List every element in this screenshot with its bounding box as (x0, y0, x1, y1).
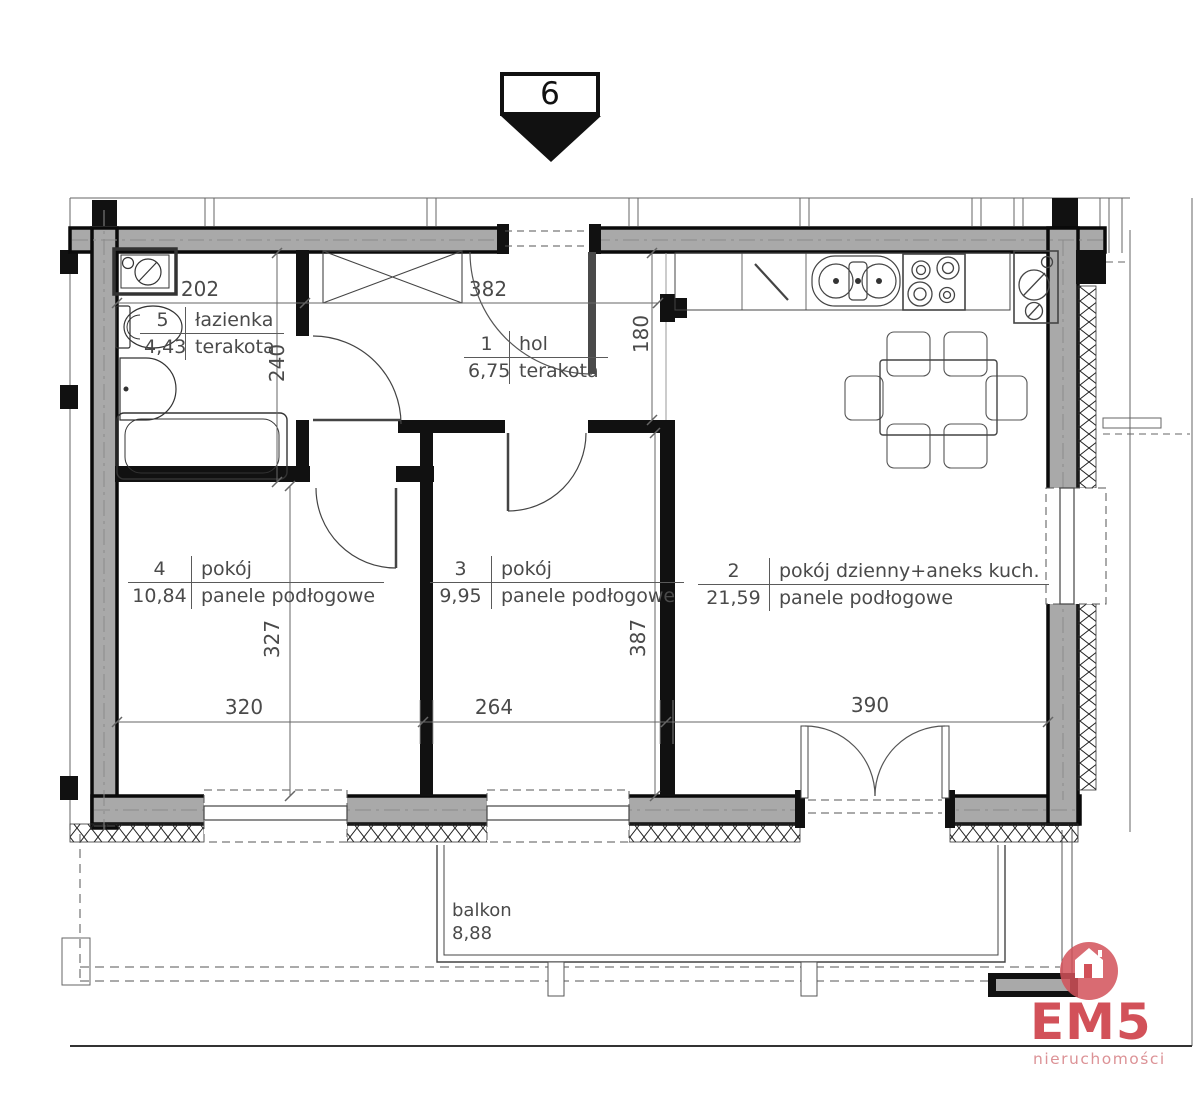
room3-door (508, 433, 586, 511)
room-number: 1 (464, 331, 510, 358)
knife-icon (755, 264, 788, 300)
room-floor: panele podłogowe (770, 585, 1049, 611)
room-name: pokój dzienny+aneks kuch. (770, 558, 1049, 585)
balcony-post (548, 962, 564, 996)
room-name: łazienka (186, 307, 284, 334)
dim-hall-depth: 180 (629, 304, 653, 364)
window-room4 (204, 790, 347, 842)
dim-living-width: 390 (840, 693, 900, 717)
dim-room3-height: 387 (626, 608, 650, 668)
balcony-label: balkon 8,88 (452, 899, 512, 945)
room-name: pokój (192, 556, 384, 583)
room-floor: panele podłogowe (492, 583, 684, 609)
room-label-hol: 1 hol 6,75 terakota (464, 331, 608, 384)
balcony-french-door (795, 726, 955, 828)
washer-shaft (114, 249, 176, 294)
room-area: 4,43 (140, 334, 186, 360)
dim-room4-height: 327 (260, 609, 284, 669)
unit-number: 6 (540, 76, 560, 112)
room-label-bathroom: 5 łazienka 4,43 terakota (140, 307, 284, 360)
room-label-room3: 3 pokój 9,95 panele podłogowe (430, 556, 684, 609)
unit-number-marker: 6 (500, 72, 600, 116)
room-number: 2 (698, 558, 770, 585)
room-floor: terakota (510, 358, 608, 384)
dining-set (845, 332, 1027, 468)
room-name: hol (510, 331, 608, 358)
room-name: pokój (492, 556, 684, 583)
wardrobe (323, 251, 462, 303)
floor-plan-page: 6 5 łazienka 4,43 terakota 1 hol 6,75 te… (0, 0, 1200, 1120)
logo-tagline: nieruchomości (1033, 1050, 1166, 1068)
balcony-post (801, 962, 817, 996)
balcony-area: 8,88 (452, 922, 512, 945)
room-area: 6,75 (464, 358, 510, 384)
window-room3 (487, 790, 629, 842)
room-area: 21,59 (698, 585, 770, 611)
kitchen-counter (675, 253, 1010, 310)
room-floor: panele podłogowe (192, 583, 384, 609)
logo-title: EM5 (1030, 996, 1152, 1048)
balcony-name: balkon (452, 899, 512, 922)
kitchen (675, 251, 1058, 323)
dim-bathroom-width: 202 (170, 277, 230, 301)
room-number: 3 (430, 556, 492, 583)
logo-mark (1060, 942, 1118, 1000)
sink (120, 358, 176, 420)
room-area: 9,95 (430, 583, 492, 609)
dim-bathroom-depth: 240 (265, 333, 289, 393)
room-area: 10,84 (128, 583, 192, 609)
dim-room3-width: 264 (464, 695, 524, 719)
kitchen-sink (812, 256, 900, 306)
right-wall-stub (1076, 250, 1106, 284)
room-number: 4 (128, 556, 192, 583)
stove (903, 254, 965, 310)
bathroom-door (313, 336, 401, 424)
dim-hall-width: 382 (458, 277, 518, 301)
room-number: 5 (140, 307, 186, 334)
room-label-living: 2 pokój dzienny+aneks kuch. 21,59 panele… (698, 558, 1049, 611)
balcony (80, 830, 1078, 997)
window-living-right (1046, 488, 1106, 604)
room-label-room4: 4 pokój 10,84 panele podłogowe (128, 556, 384, 609)
chairs (845, 332, 1027, 468)
dim-room4-width: 320 (214, 695, 274, 719)
